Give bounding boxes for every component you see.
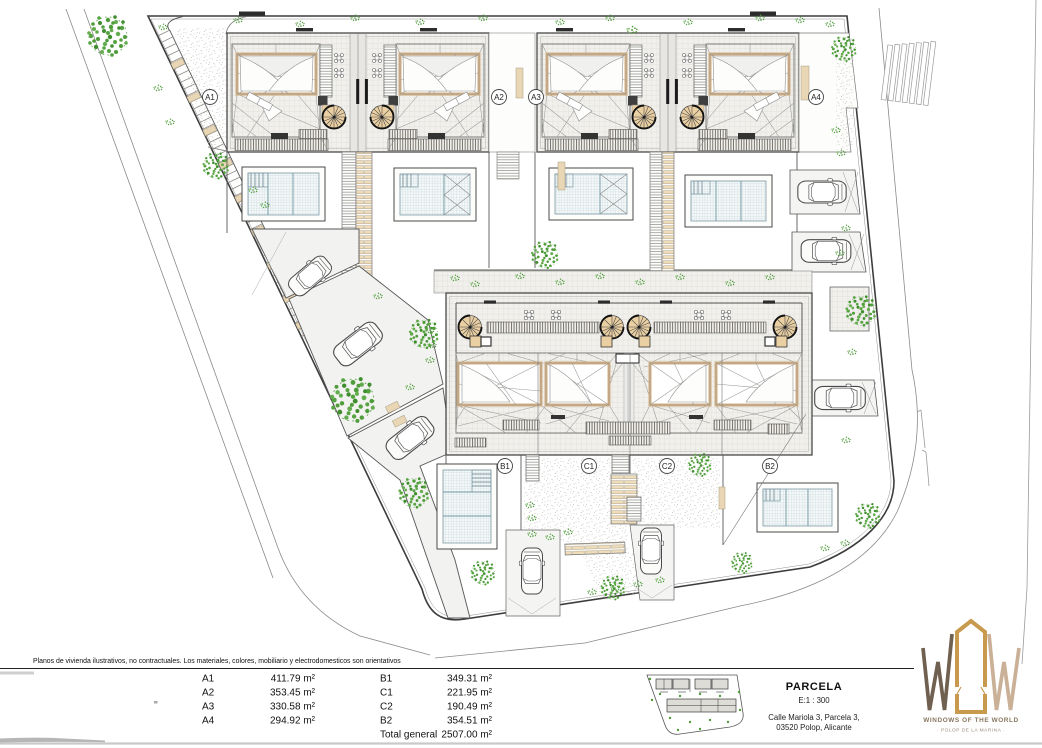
svg-text:B2: B2 bbox=[765, 462, 775, 471]
svg-text:A2: A2 bbox=[494, 93, 504, 102]
svg-text:Calle Mariola 3, Parcela 3,: Calle Mariola 3, Parcela 3, bbox=[768, 713, 859, 722]
svg-text:354.51 m²: 354.51 m² bbox=[447, 716, 493, 727]
svg-text:B2: B2 bbox=[380, 716, 393, 727]
svg-text:C1: C1 bbox=[584, 462, 595, 471]
svg-text:411.79 m²: 411.79 m² bbox=[271, 674, 316, 685]
svg-text:2507.00 m²: 2507.00 m² bbox=[441, 730, 492, 741]
svg-text:A3: A3 bbox=[531, 93, 541, 102]
svg-text:PARCELA: PARCELA bbox=[786, 681, 843, 693]
svg-text:B1: B1 bbox=[500, 462, 510, 471]
svg-text:C1: C1 bbox=[380, 688, 393, 699]
svg-text:353.45 m²: 353.45 m² bbox=[270, 688, 316, 699]
svg-text:294.92 m²: 294.92 m² bbox=[270, 716, 316, 727]
svg-text:B1: B1 bbox=[380, 674, 393, 685]
svg-text:330.58 m²: 330.58 m² bbox=[270, 702, 316, 713]
svg-text:Total general: Total general bbox=[380, 730, 437, 741]
svg-text:221.95 m²: 221.95 m² bbox=[447, 688, 493, 699]
svg-text:349.31 m²: 349.31 m² bbox=[447, 674, 493, 685]
svg-text:WINDOWS OF THE WORLD: WINDOWS OF THE WORLD bbox=[923, 717, 1018, 724]
svg-text:C2: C2 bbox=[380, 702, 393, 713]
svg-text:· POLOP DE LA MARINA ·: · POLOP DE LA MARINA · bbox=[937, 728, 1005, 734]
svg-text:E:1 : 300: E:1 : 300 bbox=[798, 696, 830, 705]
svg-text:A1: A1 bbox=[202, 674, 215, 685]
svg-text:A2: A2 bbox=[202, 688, 215, 699]
svg-text:A4: A4 bbox=[202, 716, 215, 727]
svg-text:A1: A1 bbox=[205, 93, 215, 102]
svg-text:Planos de vivienda ilustrativo: Planos de vivienda ilustrativos, no cont… bbox=[33, 658, 401, 665]
svg-text:C2: C2 bbox=[662, 462, 673, 471]
svg-text:03520 Polop, Alicante: 03520 Polop, Alicante bbox=[776, 723, 851, 732]
svg-text:A4: A4 bbox=[811, 93, 821, 102]
svg-text:A3: A3 bbox=[202, 702, 215, 713]
svg-text:190.49 m²: 190.49 m² bbox=[447, 702, 493, 713]
